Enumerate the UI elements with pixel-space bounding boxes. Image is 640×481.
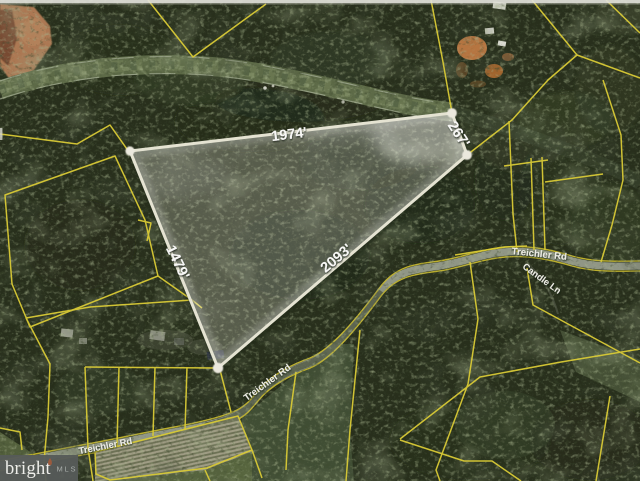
- svg-text:bright: bright: [5, 459, 52, 479]
- svg-text:MLS: MLS: [57, 465, 78, 474]
